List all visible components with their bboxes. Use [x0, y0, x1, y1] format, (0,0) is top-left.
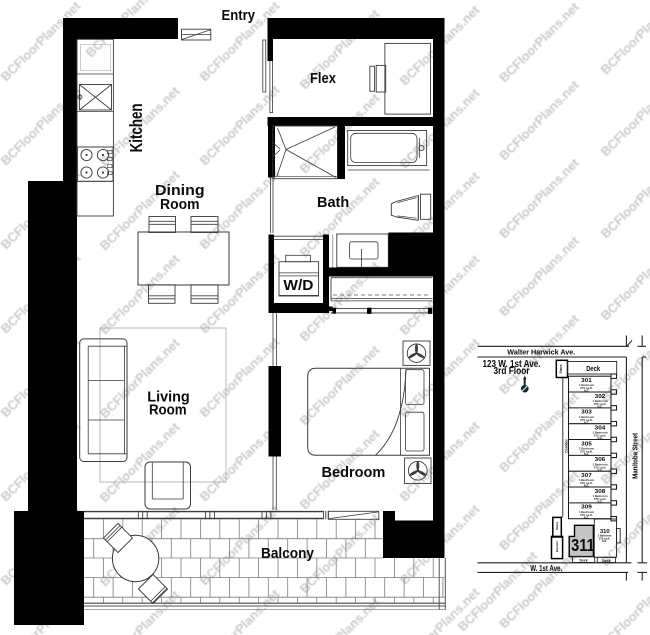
svg-text:N.E.: N.E. — [584, 420, 589, 424]
svg-text:N.E.: N.E. — [584, 452, 589, 456]
svg-text:Walter Harwick Ave.: Walter Harwick Ave. — [507, 347, 575, 356]
svg-text:N.E.: N.E. — [597, 436, 602, 440]
svg-text:Room: Room — [149, 401, 187, 418]
svg-text:N.E.: N.E. — [597, 468, 602, 472]
svg-text:Deck: Deck — [580, 559, 588, 563]
svg-text:Balcony: Balcony — [261, 545, 314, 562]
svg-text:Deck: Deck — [602, 559, 610, 563]
svg-text:N.E.: N.E. — [584, 515, 589, 519]
svg-text:Deck: Deck — [586, 364, 601, 373]
svg-text:Room: Room — [160, 196, 200, 213]
svg-text:Elevator: Elevator — [555, 540, 559, 552]
svg-text:N.E.: N.E. — [597, 405, 602, 409]
svg-text:W. 1st Ave.: W. 1st Ave. — [530, 564, 562, 573]
svg-text:311: 311 — [571, 535, 595, 555]
svg-text:Kitchen: Kitchen — [126, 103, 146, 152]
svg-text:Bedroom: Bedroom — [322, 464, 386, 481]
svg-text:Stairs: Stairs — [555, 521, 559, 530]
svg-text:N.E.: N.E. — [602, 540, 607, 543]
svg-text:Manitoba Street: Manitoba Street — [631, 432, 640, 478]
svg-text:W/D: W/D — [283, 277, 313, 294]
svg-text:Entry: Entry — [222, 7, 256, 24]
svg-text:N.E.: N.E. — [597, 500, 602, 504]
svg-text:Bath: Bath — [317, 194, 349, 211]
svg-text:Flex: Flex — [310, 70, 336, 87]
svg-text:Stairs: Stairs — [559, 364, 563, 373]
svg-text:N.E.: N.E. — [584, 484, 589, 488]
svg-text:Corridor: Corridor — [565, 439, 569, 453]
svg-text:3rd Floor: 3rd Floor — [494, 366, 530, 377]
svg-text:N.E.: N.E. — [584, 389, 589, 393]
